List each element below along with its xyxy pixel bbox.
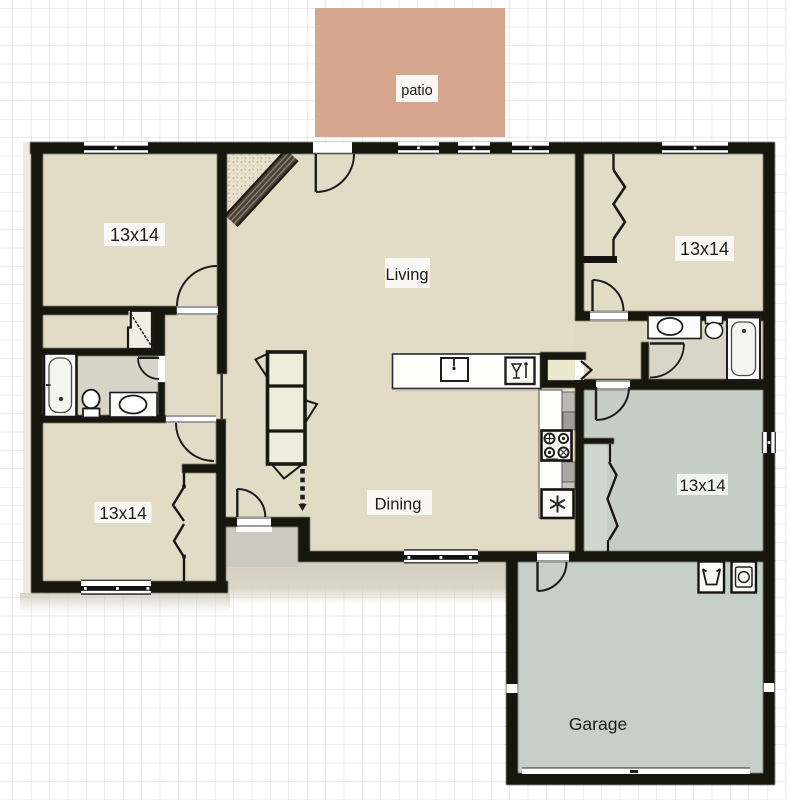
- svg-text:Garage: Garage: [569, 714, 627, 734]
- svg-text:13x14: 13x14: [99, 503, 147, 523]
- svg-text:13x14: 13x14: [680, 239, 729, 259]
- svg-text:patio: patio: [401, 83, 432, 99]
- svg-text:13x14: 13x14: [110, 225, 159, 245]
- svg-text:13x14: 13x14: [679, 476, 725, 495]
- svg-text:Dining: Dining: [375, 496, 422, 514]
- svg-text:Living: Living: [385, 266, 428, 284]
